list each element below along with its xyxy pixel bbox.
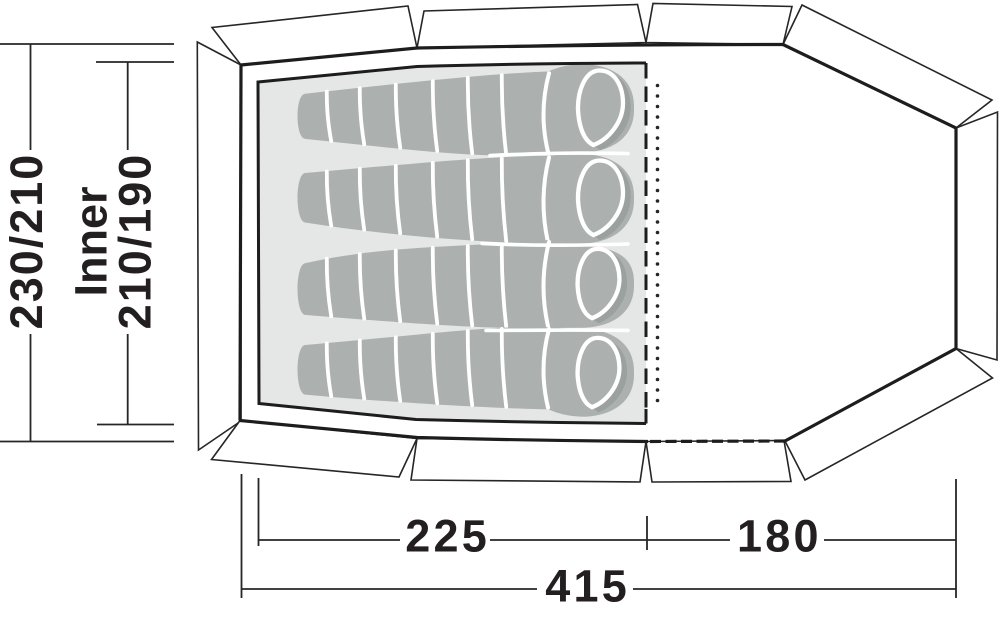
svg-text:415: 415 (545, 561, 630, 612)
svg-text:225: 225 (405, 511, 490, 562)
svg-text:230/210: 230/210 (1, 153, 52, 330)
svg-text:210/190: 210/190 (110, 153, 161, 330)
svg-text:180: 180 (737, 511, 822, 562)
